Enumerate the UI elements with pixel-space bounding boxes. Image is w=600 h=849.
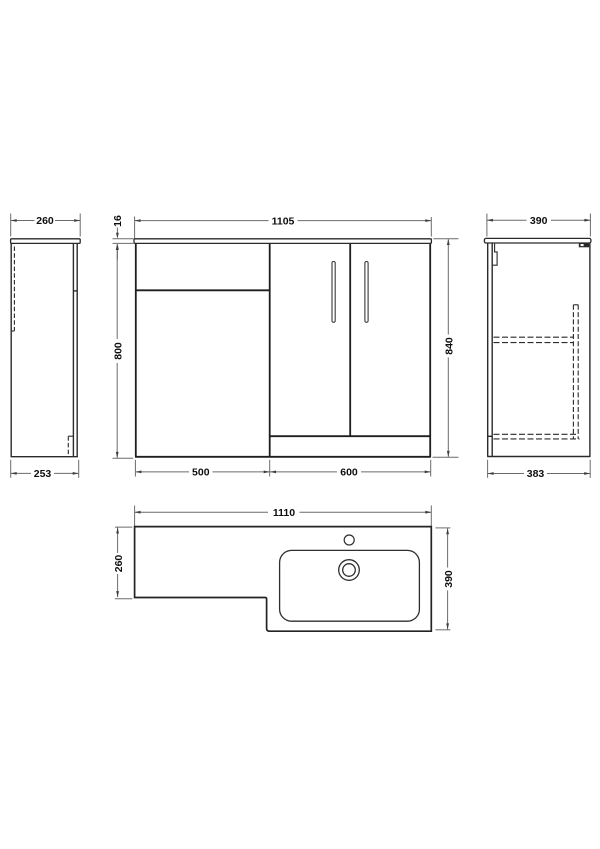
svg-text:600: 600 <box>340 467 358 479</box>
svg-text:383: 383 <box>527 468 545 480</box>
svg-text:253: 253 <box>34 468 52 480</box>
svg-text:390: 390 <box>443 570 455 588</box>
svg-text:1110: 1110 <box>273 507 295 519</box>
svg-text:260: 260 <box>113 555 125 573</box>
svg-text:500: 500 <box>192 467 210 479</box>
svg-text:390: 390 <box>530 215 548 227</box>
svg-text:260: 260 <box>36 215 54 227</box>
svg-text:800: 800 <box>112 342 124 360</box>
svg-text:1105: 1105 <box>272 215 295 227</box>
svg-text:16: 16 <box>112 215 124 227</box>
svg-text:840: 840 <box>443 337 455 355</box>
